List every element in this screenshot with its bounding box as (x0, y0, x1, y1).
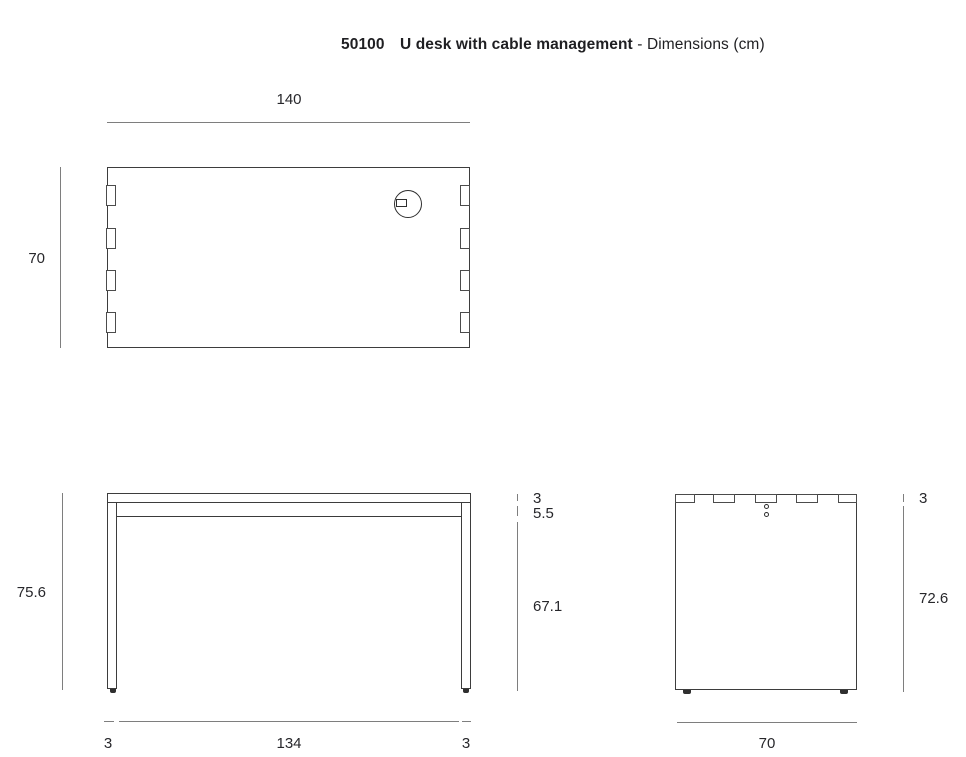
joint-tab (713, 494, 735, 503)
sideview-top-thickness-label: 3 (919, 491, 927, 507)
joint-tab (796, 494, 818, 503)
sideview-height-label: 72.6 (919, 591, 948, 607)
sideview-depth-dimline (677, 722, 857, 723)
side-view: 3 72.6 70 (0, 0, 966, 757)
joint-tab (675, 494, 695, 503)
screw-hole (764, 512, 769, 517)
screw-hole (764, 504, 769, 509)
sideview-height-dimline (903, 506, 904, 692)
sideview-top-thickness-dimline (903, 494, 904, 502)
joint-tab (838, 494, 857, 503)
dimension-drawing: 50100 U desk with cable management - Dim… (0, 0, 966, 757)
joint-tab (755, 494, 777, 503)
panel-foot (840, 690, 848, 694)
sideview-depth-label: 70 (747, 736, 787, 752)
side-panel-outline (675, 494, 857, 690)
panel-foot (683, 690, 691, 694)
